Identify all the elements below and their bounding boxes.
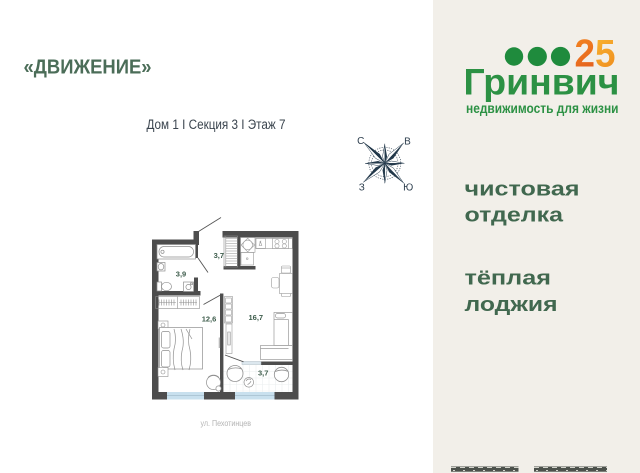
svg-text:В: В	[404, 137, 411, 148]
svg-text:чистовая: чистовая	[465, 179, 580, 201]
svg-text:3,7: 3,7	[258, 369, 268, 378]
svg-text:отделка: отделка	[465, 205, 565, 227]
svg-text:лоджия: лоджия	[465, 294, 558, 316]
svg-text:«ДВИЖЕНИЕ»: «ДВИЖЕНИЕ»	[24, 57, 152, 79]
svg-text:12,6: 12,6	[202, 315, 217, 324]
svg-text:16,7: 16,7	[248, 313, 263, 322]
svg-text:тёплая: тёплая	[465, 268, 552, 290]
svg-text:Дом 1 I Секция 3 I Этаж 7: Дом 1 I Секция 3 I Этаж 7	[147, 117, 286, 132]
svg-text:З: З	[359, 183, 365, 194]
svg-text:недвижимость для жизни: недвижимость для жизни	[466, 100, 619, 116]
svg-text:Ю: Ю	[403, 183, 413, 194]
svg-text:С: С	[357, 136, 364, 147]
svg-text:3,9: 3,9	[176, 270, 186, 279]
svg-text:3,7: 3,7	[214, 251, 224, 260]
svg-text:Гринвич: Гринвич	[464, 61, 620, 103]
svg-text:ул. Пехотинцев: ул. Пехотинцев	[201, 419, 252, 428]
